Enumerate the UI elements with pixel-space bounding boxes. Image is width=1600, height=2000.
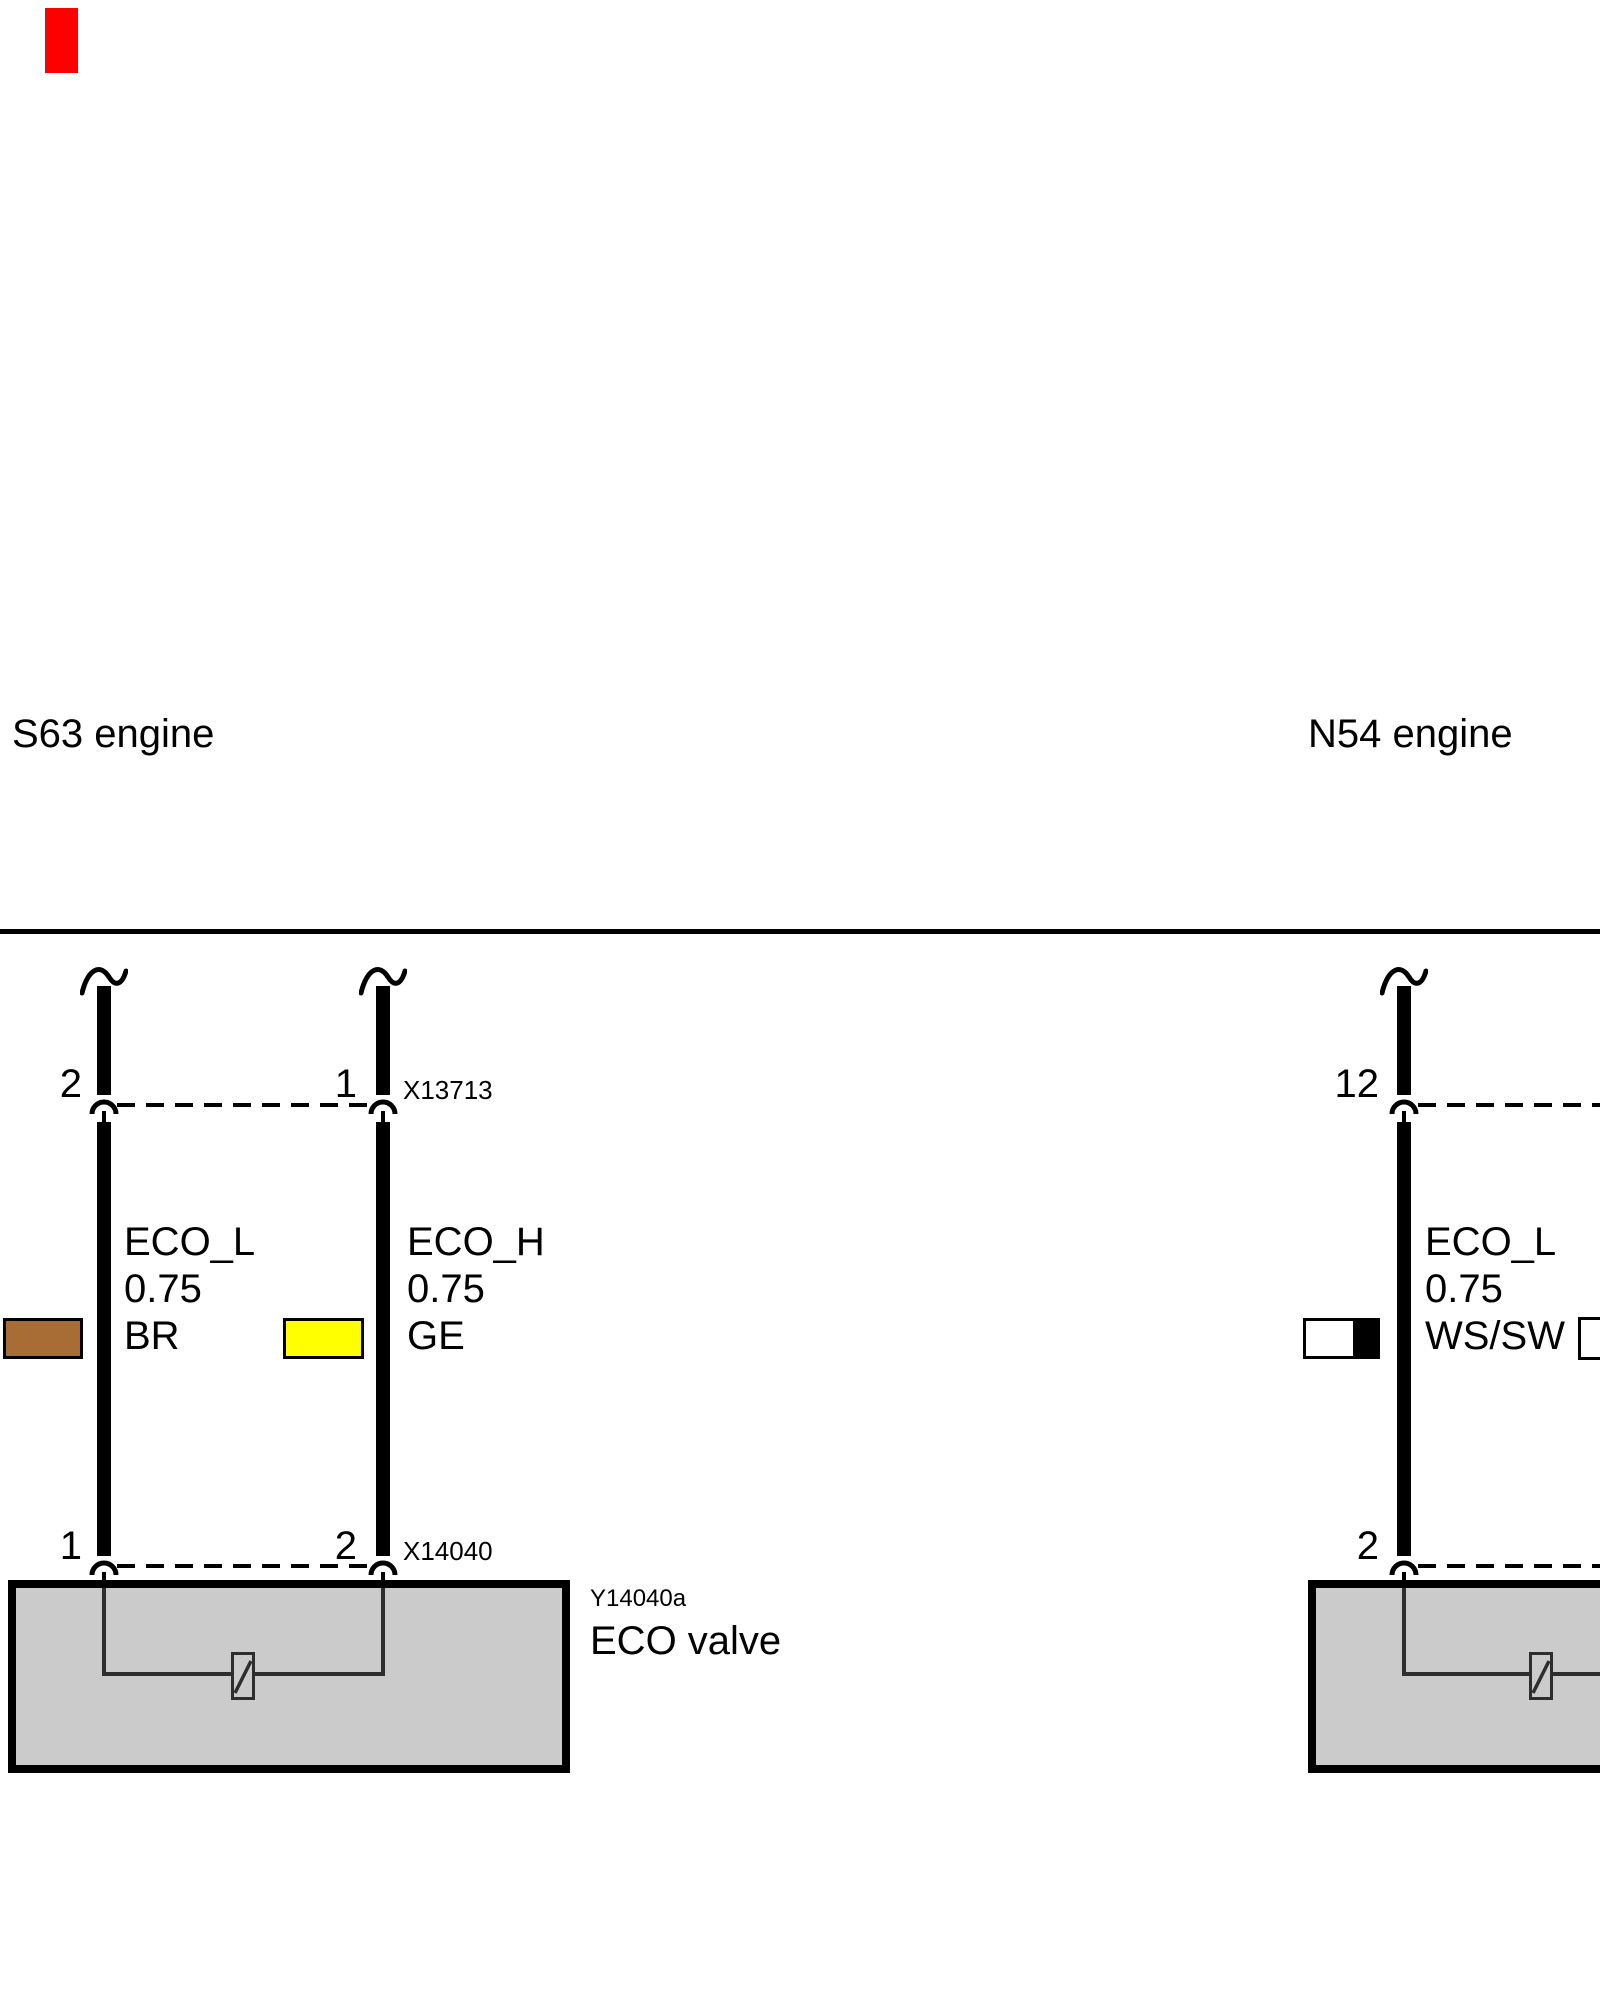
wire-segment bbox=[376, 1122, 390, 1556]
eco-valve-box bbox=[8, 1580, 570, 1773]
wire-signal-label: ECO_H bbox=[407, 1219, 545, 1266]
wiring-diagram-page: { "marker": { "color": "#ff0000" }, "hea… bbox=[0, 0, 1600, 2000]
wire-color-code-label: GE bbox=[407, 1313, 545, 1360]
internal-wire bbox=[102, 1588, 106, 1676]
pin-number: 2 bbox=[1320, 1526, 1379, 1566]
connector-boundary-dashed-line bbox=[1418, 1103, 1600, 1107]
component-id-label: Y14040a bbox=[590, 1587, 686, 1611]
wire-color-code-label: BR bbox=[124, 1313, 255, 1360]
wire-segment bbox=[1397, 986, 1411, 1095]
swatch-stripe bbox=[1353, 1321, 1377, 1356]
wire-label-block: ECO_L 0.75 BR bbox=[124, 1219, 255, 1360]
wire-segment bbox=[97, 986, 111, 1095]
component-name-label: ECO valve bbox=[590, 1621, 781, 1661]
section-separator-line bbox=[0, 929, 1600, 934]
wire-label-block: ECO_H 0.75 GE bbox=[407, 1219, 545, 1360]
wire-signal-label: ECO_L bbox=[1425, 1219, 1565, 1266]
connector-boundary-dashed-line bbox=[1418, 1564, 1600, 1568]
wire-color-code-label: WS/SW bbox=[1425, 1313, 1565, 1360]
wire-color-swatch-brown bbox=[3, 1318, 83, 1359]
wire-segment bbox=[1397, 1122, 1411, 1556]
internal-wire bbox=[381, 1588, 385, 1676]
wire-color-swatch-partial bbox=[1578, 1317, 1600, 1360]
wire-signal-label: ECO_L bbox=[124, 1219, 255, 1266]
wire-gauge-label: 0.75 bbox=[1425, 1266, 1565, 1313]
solenoid-valve-symbol bbox=[1529, 1652, 1553, 1700]
wire-segment bbox=[376, 986, 390, 1095]
wire-color-swatch-white-black bbox=[1303, 1318, 1380, 1359]
wire-gauge-label: 0.75 bbox=[124, 1266, 255, 1313]
eco-valve-box bbox=[1308, 1580, 1600, 1773]
wire-color-swatch-yellow bbox=[283, 1318, 364, 1359]
engine-title-s63: S63 engine bbox=[12, 714, 214, 754]
solenoid-valve-symbol bbox=[231, 1652, 255, 1700]
internal-wire bbox=[1402, 1672, 1600, 1676]
pin-number: 2 bbox=[315, 1526, 357, 1566]
wire-label-block: ECO_L 0.75 WS/SW bbox=[1425, 1219, 1565, 1360]
connector-boundary-dashed-line bbox=[117, 1103, 370, 1107]
pin-number: 1 bbox=[40, 1526, 82, 1566]
pin-number: 1 bbox=[315, 1064, 357, 1104]
pin-number: 2 bbox=[40, 1064, 82, 1104]
wire-segment bbox=[97, 1122, 111, 1556]
connector-boundary-dashed-line bbox=[117, 1564, 370, 1568]
connector-id-label: X13713 bbox=[403, 1077, 493, 1103]
connector-id-label: X14040 bbox=[403, 1538, 493, 1564]
red-marker bbox=[45, 8, 78, 73]
wire-gauge-label: 0.75 bbox=[407, 1266, 545, 1313]
internal-wire bbox=[1402, 1588, 1406, 1676]
pin-number: 12 bbox=[1320, 1064, 1379, 1104]
engine-title-n54: N54 engine bbox=[1308, 714, 1513, 754]
